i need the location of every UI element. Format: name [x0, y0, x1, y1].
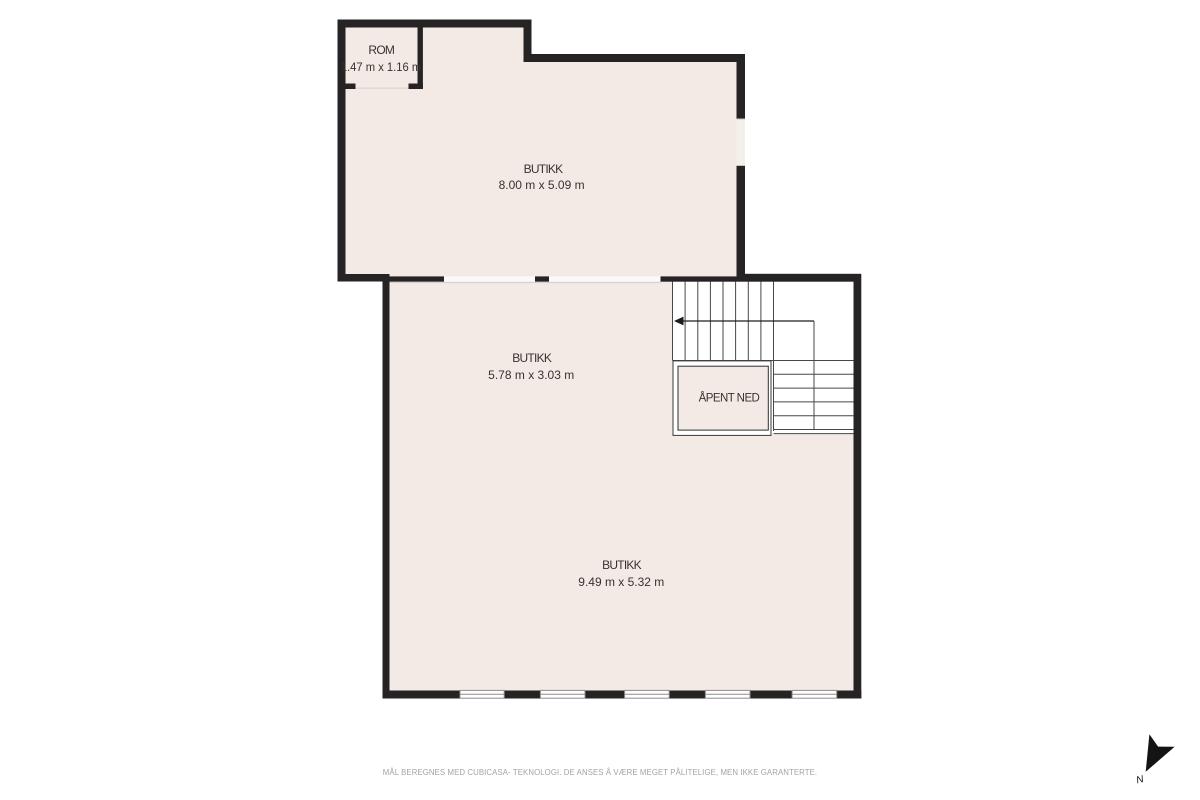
svg-text:MÅL BEREGNES MED CUBICASA- TEK: MÅL BEREGNES MED CUBICASA- TEKNOLOGI. DE… — [383, 768, 817, 777]
svg-text:BUTIKK: BUTIKK — [512, 351, 552, 365]
svg-text:9.49 m x 5.32 m: 9.49 m x 5.32 m — [578, 575, 664, 589]
svg-text:ROM: ROM — [368, 43, 395, 57]
svg-text:8.00 m x 5.09 m: 8.00 m x 5.09 m — [499, 178, 585, 192]
svg-text:5.78 m x 3.03 m: 5.78 m x 3.03 m — [488, 368, 574, 382]
svg-text:BUTIKK: BUTIKK — [524, 162, 564, 176]
svg-text:ÅPENT NED: ÅPENT NED — [699, 391, 760, 404]
svg-text:1.47 m x 1.16 m: 1.47 m x 1.16 m — [341, 60, 422, 74]
svg-text:BUTIKK: BUTIKK — [602, 558, 642, 572]
